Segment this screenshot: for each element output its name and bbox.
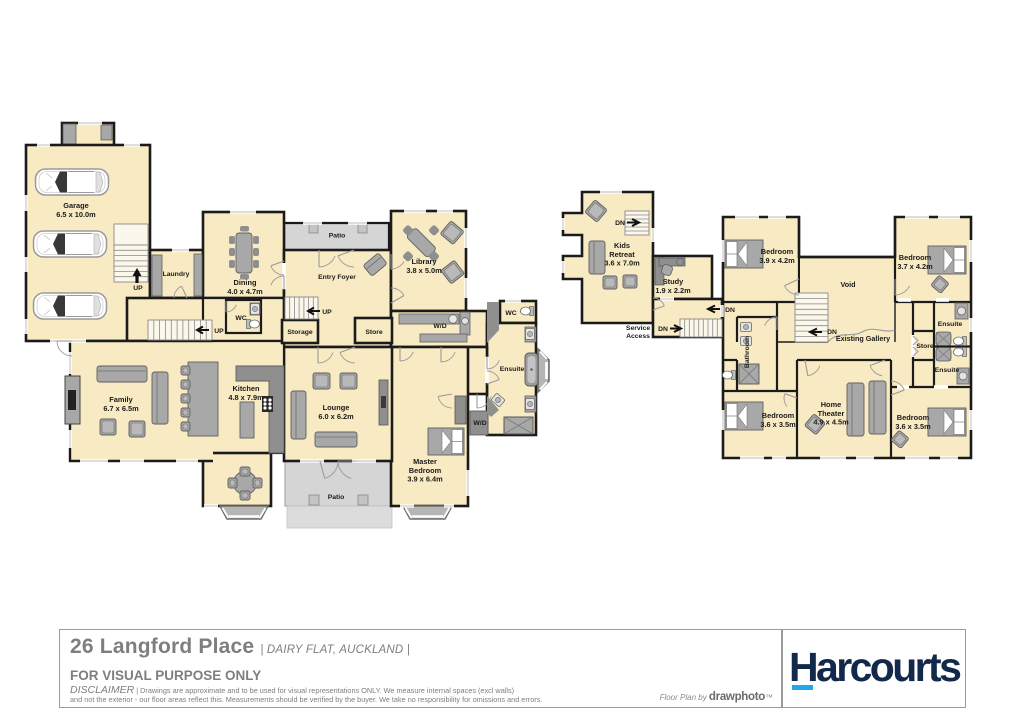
svg-text:Theater: Theater xyxy=(818,409,845,418)
svg-text:Bathroom: Bathroom xyxy=(744,336,751,368)
svg-text:UP: UP xyxy=(322,309,332,316)
svg-text:Storage: Storage xyxy=(287,329,313,336)
svg-text:DN: DN xyxy=(725,307,735,314)
svg-text:Study: Study xyxy=(663,277,684,286)
svg-text:1.9 x 2.2m: 1.9 x 2.2m xyxy=(655,286,691,295)
svg-text:Dining: Dining xyxy=(234,278,257,287)
svg-text:Access: Access xyxy=(626,333,650,340)
svg-text:UP: UP xyxy=(133,285,143,292)
svg-text:6.0 x 6.2m: 6.0 x 6.2m xyxy=(318,412,354,421)
svg-text:3.7 x 4.2m: 3.7 x 4.2m xyxy=(897,262,933,271)
svg-text:W/D: W/D xyxy=(433,323,446,330)
svg-text:Store: Store xyxy=(365,329,383,336)
svg-text:Bedroom: Bedroom xyxy=(762,411,795,420)
svg-text:Existing Gallery: Existing Gallery xyxy=(836,334,890,343)
svg-text:Ensuite: Ensuite xyxy=(938,321,963,328)
svg-text:Family: Family xyxy=(109,395,133,404)
svg-text:Ensuite: Ensuite xyxy=(935,367,960,374)
svg-text:4.8 x 7.9m: 4.8 x 7.9m xyxy=(228,393,264,402)
svg-text:3.6 x 3.5m: 3.6 x 3.5m xyxy=(760,420,796,429)
svg-text:Library: Library xyxy=(411,257,437,266)
svg-text:Ensuite: Ensuite xyxy=(500,366,525,373)
svg-text:Master: Master xyxy=(413,457,437,466)
svg-text:Void: Void xyxy=(840,280,855,289)
svg-text:4.9 x 4.5m: 4.9 x 4.5m xyxy=(813,418,849,427)
svg-text:Retreat: Retreat xyxy=(609,250,635,259)
svg-text:W/D: W/D xyxy=(473,420,486,427)
svg-text:3.8 x 5.0m: 3.8 x 5.0m xyxy=(406,266,442,275)
svg-text:4.0 x 4.7m: 4.0 x 4.7m xyxy=(227,287,263,296)
svg-text:Bedroom: Bedroom xyxy=(899,253,932,262)
svg-text:UP: UP xyxy=(214,328,224,335)
svg-text:6.7 x 6.5m: 6.7 x 6.5m xyxy=(103,404,139,413)
svg-text:Patio: Patio xyxy=(329,233,346,240)
svg-text:Kids: Kids xyxy=(614,241,630,250)
svg-text:Kitchen: Kitchen xyxy=(232,384,260,393)
svg-text:6.5 x 10.0m: 6.5 x 10.0m xyxy=(56,210,96,219)
svg-text:3.6 x 7.0m: 3.6 x 7.0m xyxy=(604,259,640,268)
svg-text:Bedroom: Bedroom xyxy=(761,247,794,256)
svg-text:DN: DN xyxy=(615,220,625,227)
svg-text:Patio: Patio xyxy=(328,494,345,501)
svg-text:Lounge: Lounge xyxy=(323,403,350,412)
svg-text:3.6 x 3.5m: 3.6 x 3.5m xyxy=(895,422,931,431)
svg-text:Laundry: Laundry xyxy=(163,271,190,278)
svg-text:WC: WC xyxy=(505,310,516,317)
svg-text:DN: DN xyxy=(658,326,668,333)
svg-text:Bedroom: Bedroom xyxy=(897,413,930,422)
svg-text:WC: WC xyxy=(235,315,246,322)
svg-text:3.9 x 6.4m: 3.9 x 6.4m xyxy=(407,475,443,484)
svg-text:Garage: Garage xyxy=(63,201,88,210)
svg-text:Store: Store xyxy=(916,343,934,350)
svg-text:3.9 x 4.2m: 3.9 x 4.2m xyxy=(759,256,795,265)
svg-text:Entry Foyer: Entry Foyer xyxy=(318,274,356,281)
svg-text:Bedroom: Bedroom xyxy=(409,466,442,475)
svg-text:Home: Home xyxy=(821,400,842,409)
svg-text:Service: Service xyxy=(626,325,650,332)
